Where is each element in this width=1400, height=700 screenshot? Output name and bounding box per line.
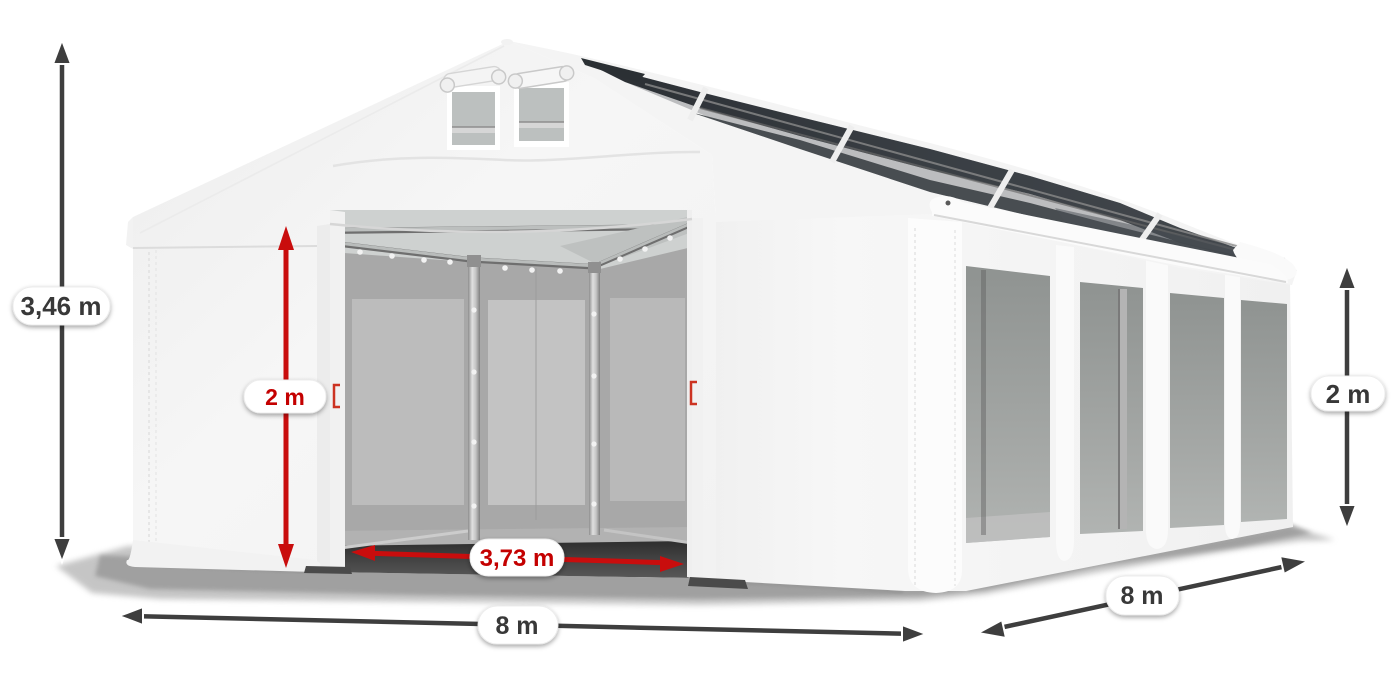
svg-text:2 m: 2 m <box>1326 379 1371 409</box>
svg-text:8 m: 8 m <box>1120 582 1163 610</box>
svg-text:3,73 m: 3,73 m <box>480 545 555 572</box>
svg-text:3,46 m: 3,46 m <box>21 291 102 321</box>
svg-text:2 m: 2 m <box>265 384 305 410</box>
svg-text:8 m: 8 m <box>495 612 538 640</box>
